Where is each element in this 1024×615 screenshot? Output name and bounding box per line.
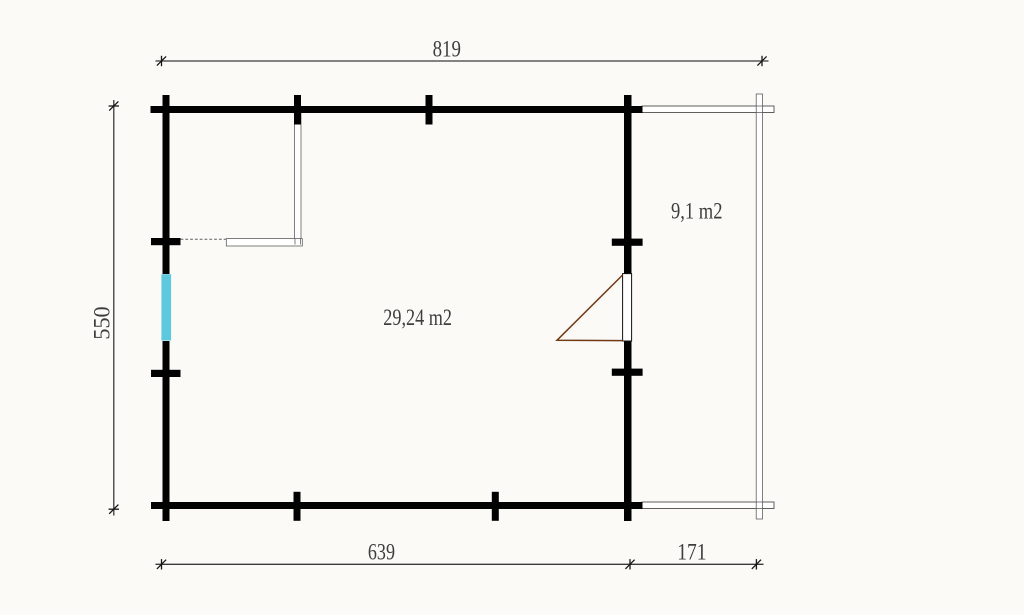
svg-text:639: 639: [368, 539, 395, 564]
svg-text:171: 171: [677, 540, 706, 565]
svg-text:819: 819: [433, 36, 461, 61]
svg-text:29,24 m2: 29,24 m2: [383, 305, 452, 330]
svg-text:550: 550: [89, 306, 114, 339]
svg-text:9,1 m2: 9,1 m2: [671, 198, 723, 223]
